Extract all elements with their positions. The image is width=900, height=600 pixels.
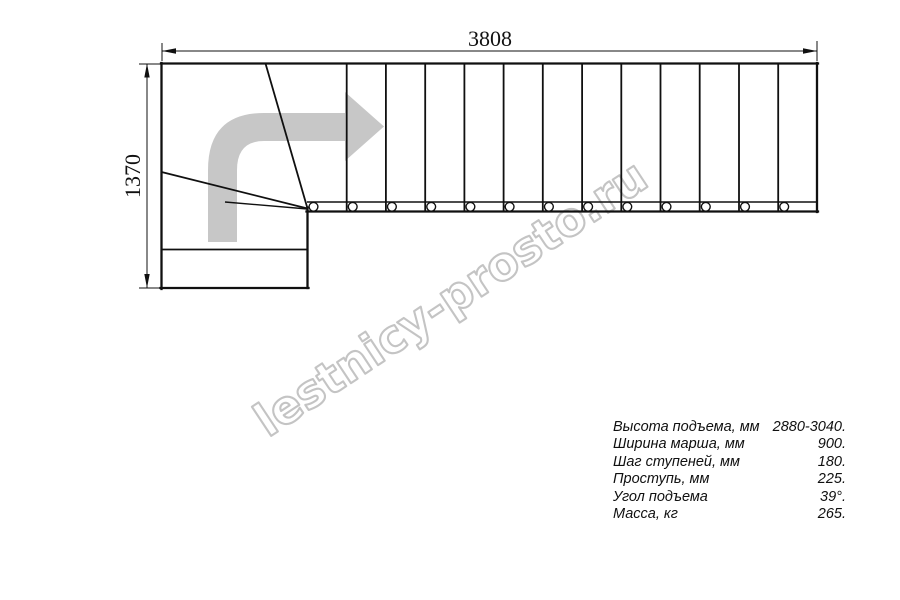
dim-arrow-left	[162, 48, 176, 53]
spec-row: Проступь, мм 225.	[613, 471, 846, 488]
spec-label: Высота подъема, мм	[613, 419, 760, 436]
spec-value: 265.	[818, 506, 846, 523]
baluster-circle	[309, 202, 318, 211]
spec-row: Шаг ступеней, мм 180.	[613, 454, 846, 471]
baluster-circle	[466, 202, 475, 211]
spec-value: 900.	[818, 436, 846, 453]
spec-row: Ширина марша, мм 900.	[613, 436, 846, 453]
baluster-circle	[623, 202, 632, 211]
spec-value: 225.	[818, 471, 846, 488]
spec-label: Проступь, мм	[613, 471, 709, 488]
baluster-circle	[741, 202, 750, 211]
spec-table: Высота подъема, мм 2880-3040. Ширина мар…	[613, 419, 846, 523]
baluster-circle	[388, 202, 397, 211]
spec-value: 180.	[818, 454, 846, 471]
spec-label: Масса, кг	[613, 506, 678, 523]
dim-arrow-top	[144, 64, 149, 78]
spec-label: Угол подъема	[613, 489, 708, 506]
balusters	[309, 202, 788, 211]
spec-value: 39°.	[820, 489, 846, 506]
width-dimension-value: 3808	[468, 26, 512, 51]
spec-row: Высота подъема, мм 2880-3040.	[613, 419, 846, 436]
spec-value: 2880-3040.	[773, 419, 846, 436]
dim-arrow-right	[803, 48, 817, 53]
spec-row: Угол подъема 39°.	[613, 489, 846, 506]
step-lines	[347, 64, 779, 212]
baluster-circle	[780, 202, 789, 211]
watermark-text: lestnicy-prosto.ru	[244, 149, 657, 447]
height-dimension: 1370	[120, 64, 161, 289]
spec-label: Шаг ступеней, мм	[613, 454, 740, 471]
spec-label: Ширина марша, мм	[613, 436, 745, 453]
baluster-circle	[505, 202, 514, 211]
baluster-circle	[662, 202, 671, 211]
baluster-circle	[701, 202, 710, 211]
width-dimension: 3808	[162, 26, 817, 61]
baluster-circle	[584, 202, 593, 211]
height-dimension-value: 1370	[120, 154, 145, 198]
dim-arrow-bottom	[144, 274, 149, 288]
baluster-circle	[427, 202, 436, 211]
baluster-circle	[348, 202, 357, 211]
spec-row: Масса, кг 265.	[613, 506, 846, 523]
baluster-circle	[545, 202, 554, 211]
drawing-canvas: lestnicy-prosto.ru	[0, 0, 900, 600]
